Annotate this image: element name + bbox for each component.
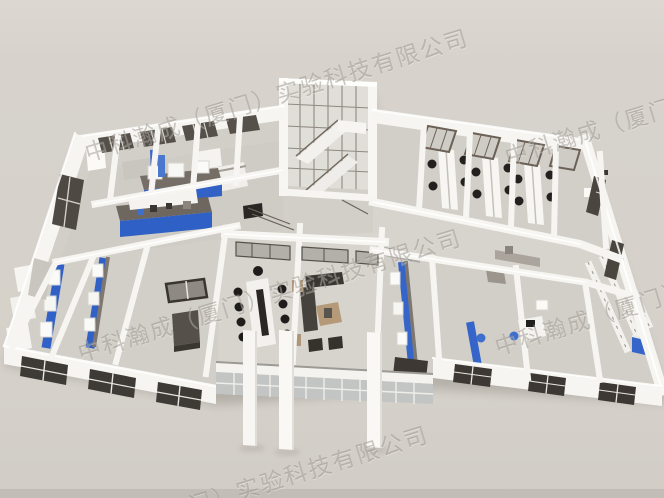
rendered-floorplan-image: 中科瀚成（厦门）实验科技有限公司 中科瀚成（厦门）实验科技有限公司 中科瀚成（厦…	[0, 0, 664, 498]
ground-strip	[0, 489, 664, 498]
floorplan-render	[0, 0, 664, 498]
